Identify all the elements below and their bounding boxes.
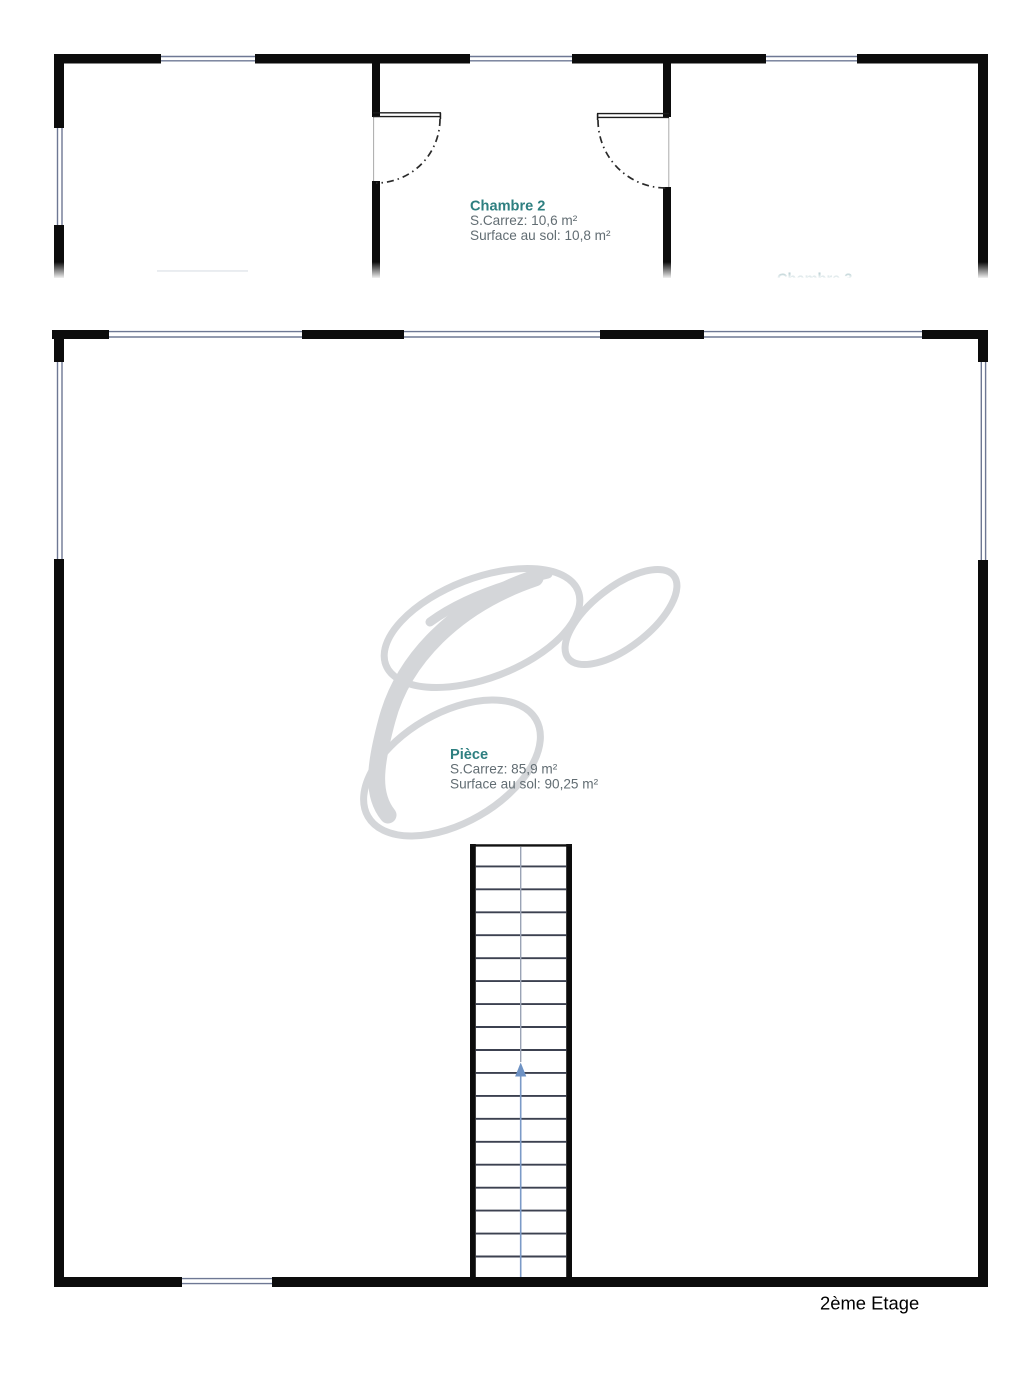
svg-text:Surface au sol: 10,8 m²: Surface au sol: 10,8 m² <box>470 228 611 243</box>
svg-text:S.Carrez: 85,9 m²: S.Carrez: 85,9 m² <box>450 762 558 777</box>
svg-text:Surface au sol: 90,25 m²: Surface au sol: 90,25 m² <box>450 777 599 792</box>
svg-text:S.Carrez: 10,6 m²: S.Carrez: 10,6 m² <box>470 213 578 228</box>
svg-text:2ème Etage: 2ème Etage <box>820 1293 919 1314</box>
